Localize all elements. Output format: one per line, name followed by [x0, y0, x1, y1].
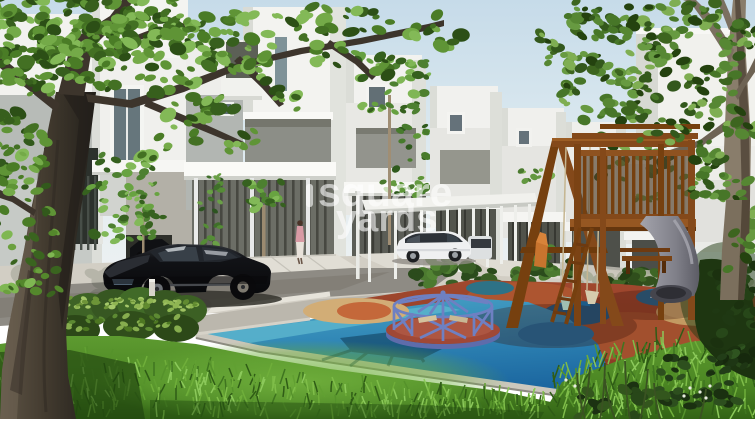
svg-text:yards: yards [336, 198, 437, 240]
